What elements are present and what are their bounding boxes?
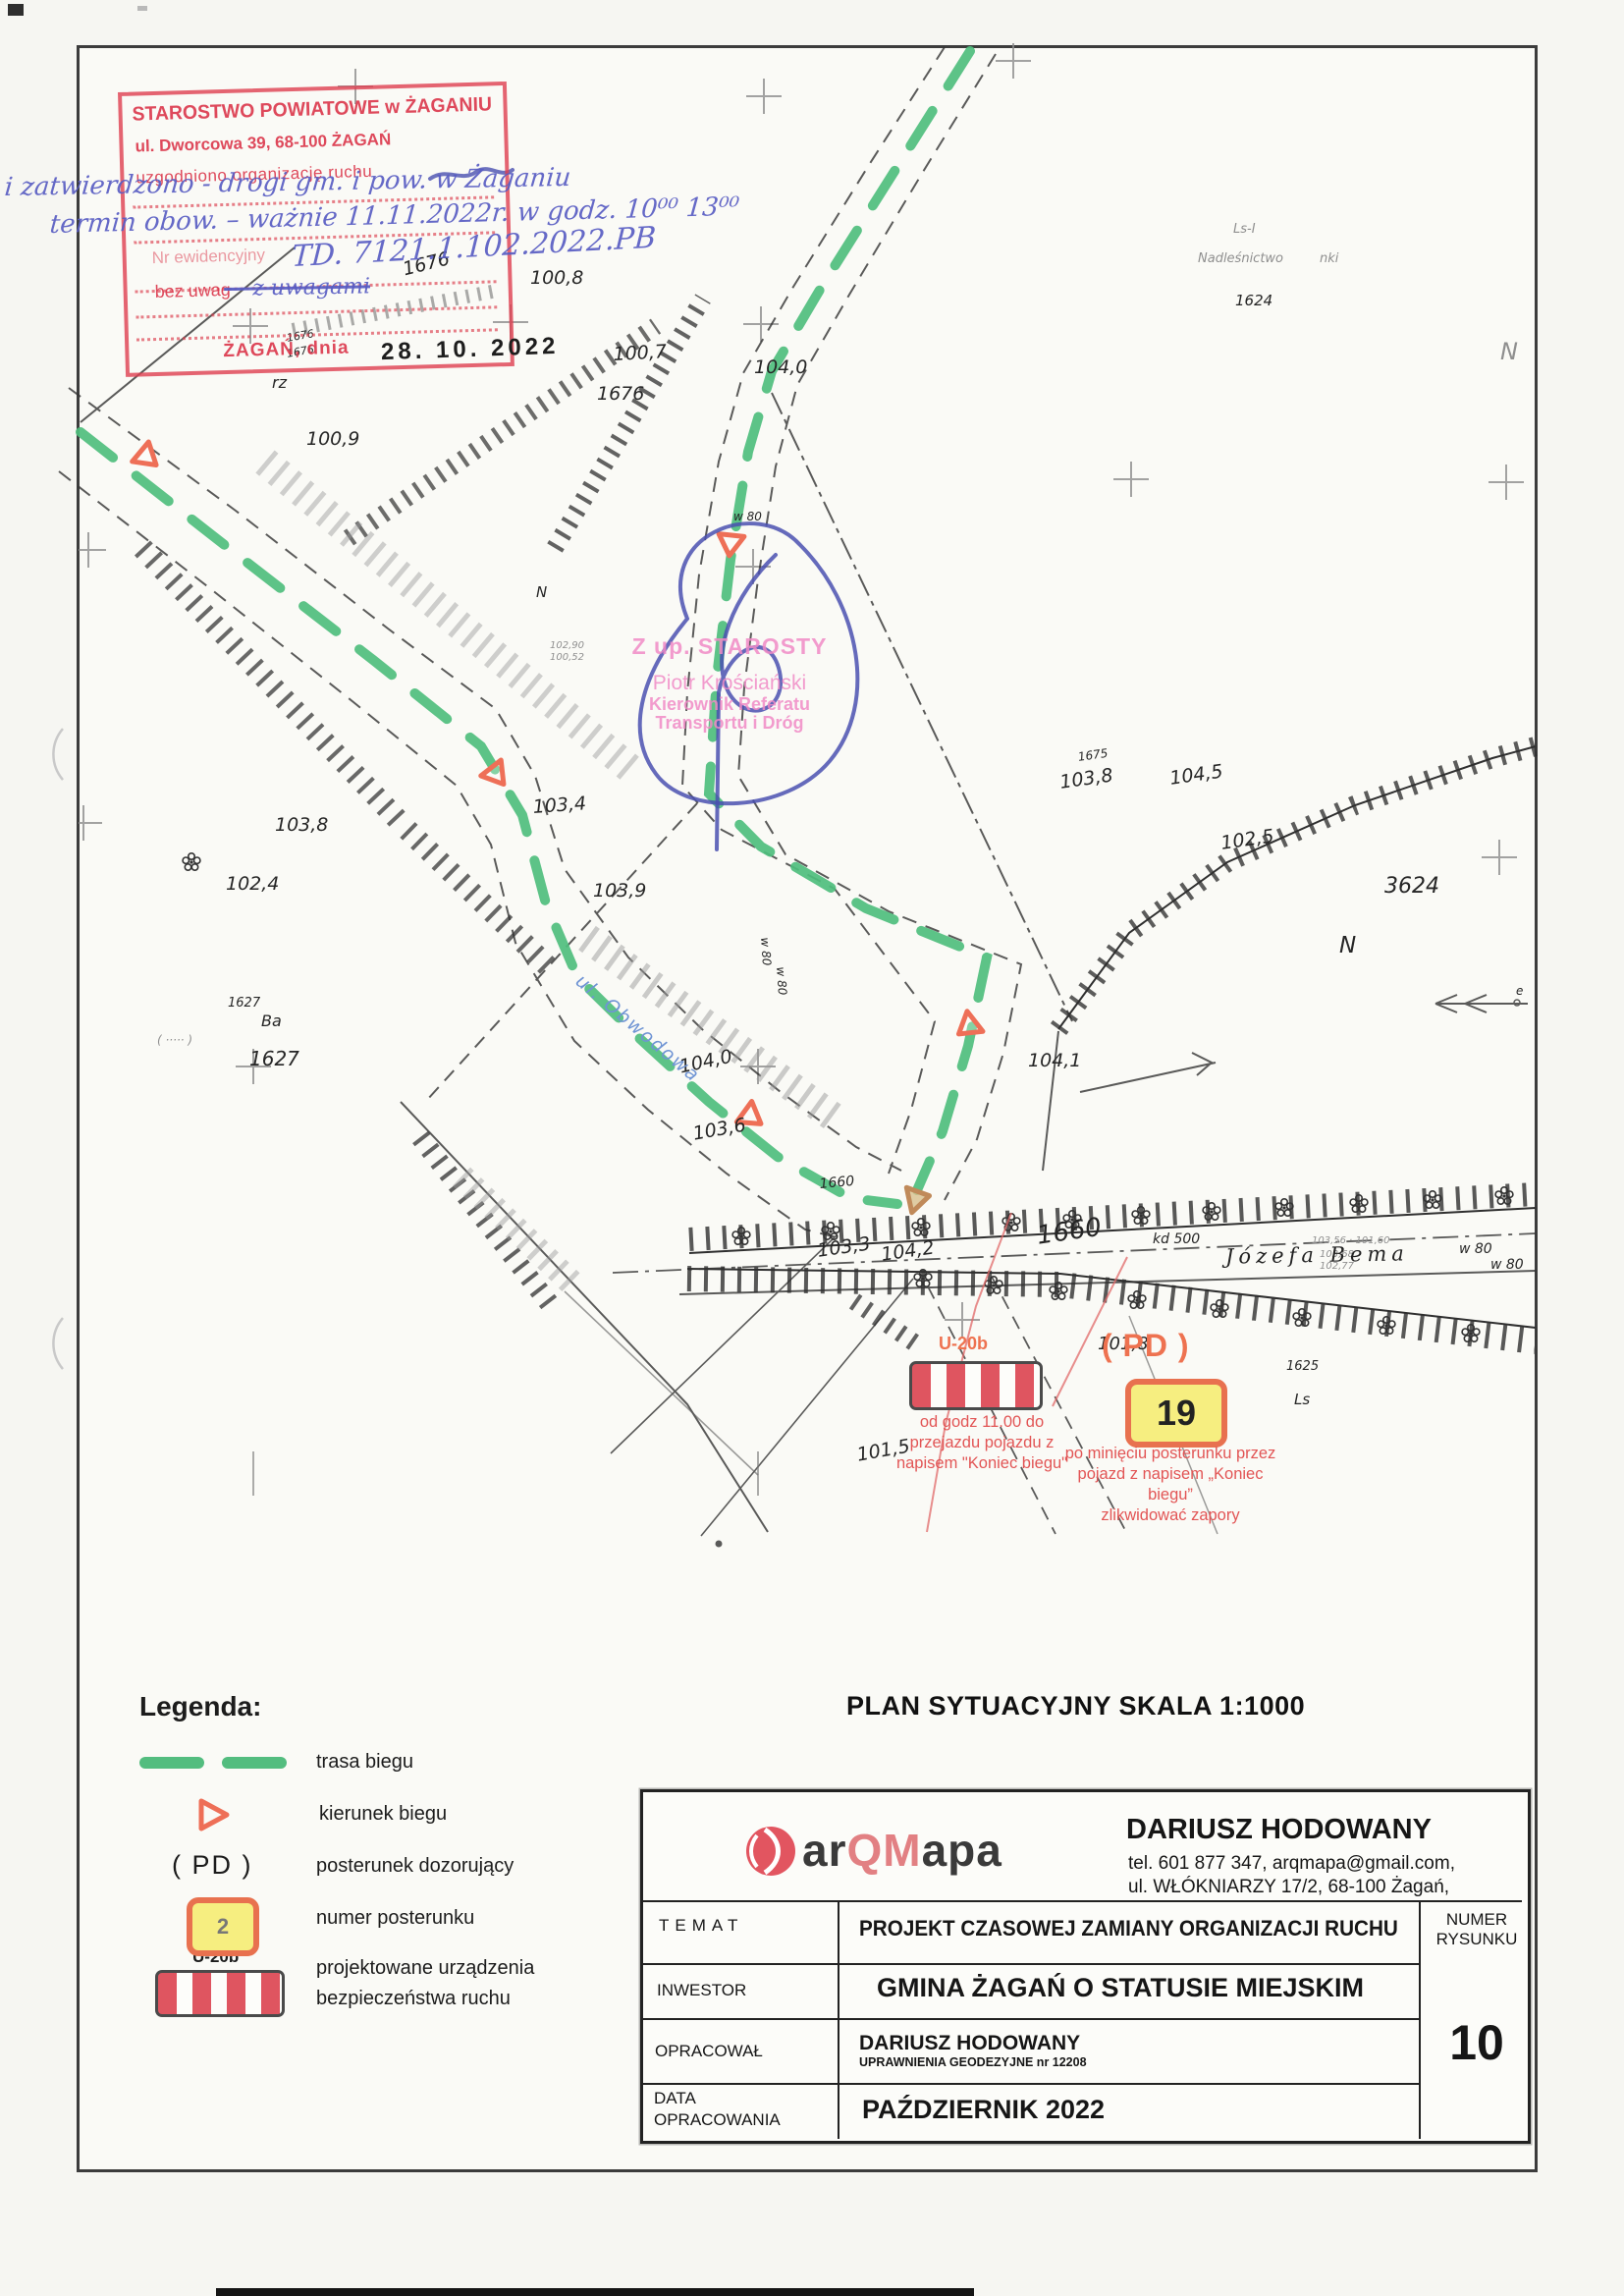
stamp-office-address: ul. Dworcowa 39, 68-100 ŻAGAŃ: [135, 130, 391, 156]
map-label: 1625: [1286, 1359, 1319, 1374]
map-label: 100,9: [306, 428, 359, 450]
map-label: w 80: [1459, 1241, 1492, 1257]
legend-number-label: numer posterunku: [316, 1907, 474, 1930]
map-label: 1676: [597, 383, 644, 405]
map-label: 1627: [249, 1047, 299, 1070]
approval-line3: Kierownik Referatu: [601, 695, 858, 714]
north-letter: N: [536, 583, 547, 601]
author-name: DARIUSZ HODOWANY: [1126, 1814, 1432, 1846]
map-label: 104,1: [1028, 1050, 1081, 1071]
map-label: 103,8: [275, 814, 328, 836]
inwestor-value: GMINA ŻAGAŃ O STATUSIE MIEJSKIM: [877, 1973, 1364, 2003]
title-block: arQMapa DARIUSZ HODOWANY tel. 601 877 34…: [640, 1789, 1531, 2144]
caption-right-line3: zlikwidować zapory: [1062, 1505, 1278, 1526]
numer-label-1: NUMER: [1432, 1910, 1522, 1930]
arqmapa-logo-text: arQMapa: [802, 1824, 1002, 1877]
numer-label-2: RYSUNKU: [1432, 1930, 1522, 1949]
data-value: PAŹDZIERNIK 2022: [862, 2095, 1105, 2125]
drawing-number: 10: [1432, 2014, 1522, 2071]
north-letter: N: [1500, 338, 1518, 365]
author-contact: tel. 601 877 347, arqmapa@gmail.com,: [1128, 1853, 1455, 1875]
map-label: 103,4: [532, 793, 587, 818]
map-label: w 80: [774, 966, 789, 996]
caption-right-line2: pojazd z napisem „Koniec biegu”: [1062, 1464, 1278, 1505]
map-label: 3624: [1384, 874, 1439, 899]
legend-route-label: trasa biegu: [316, 1751, 413, 1774]
pd-map-label: ( PD ): [1102, 1328, 1190, 1364]
stamp-nr-label: Nr ewidencyjny: [151, 246, 265, 268]
u20b-barrier-sample-icon: [155, 1970, 285, 2017]
approval-stamp: Z up. STAROSTY Piotr Krościański Kierown…: [601, 634, 858, 733]
approval-line2: Piotr Krościański: [601, 673, 858, 695]
legend-devices-line2: bezpieczeństwa ruchu: [316, 1988, 511, 2010]
map-label: w 80: [733, 510, 762, 523]
map-label: w 80: [1490, 1257, 1524, 1273]
map-label: 102,90: [550, 640, 584, 651]
caption-right-line1: po minięciu posterunku przez: [1062, 1444, 1278, 1464]
opracowal-sub: UPRAWNIENIA GEODEZYJNE nr 12208: [859, 2055, 1087, 2069]
legend-devices-line1: projektowane urządzenia: [316, 1957, 534, 1980]
map-label: 103,9: [593, 880, 646, 902]
temat-label: TEMAT: [659, 1916, 743, 1936]
scanned-plan-page: STAROSTWO POWIATOWE w ŻAGANIU ul. Dworco…: [0, 0, 1624, 2296]
caption-left-line3: napisem "Koniec biegu": [884, 1453, 1080, 1474]
legend-direction-label: kierunek biegu: [319, 1803, 447, 1826]
legend-title: Legenda:: [139, 1691, 261, 1722]
pd-symbol: ( PD ): [172, 1850, 253, 1881]
caption-left-line1: od godz 11.00 do: [884, 1412, 1080, 1433]
data-label-1: DATA: [654, 2089, 696, 2108]
map-label: Ba: [261, 1011, 282, 1030]
stamp-no-remarks: bez uwag: [154, 280, 231, 302]
approval-line1: Z up. STAROSTY: [601, 634, 858, 659]
temat-value: PROJEKT CZASOWEJ ZAMIANY ORGANIZACJI RUC…: [859, 1916, 1398, 1941]
map-label: w 80: [758, 937, 774, 966]
legend-pd-label: posterunek dozorujący: [316, 1855, 514, 1878]
map-label: e: [1516, 984, 1523, 998]
inwestor-label: INWESTOR: [657, 1981, 746, 2000]
caption-left-line2: przejazdu pojazdu z: [884, 1433, 1080, 1453]
direction-triangle-icons: [133, 442, 983, 1213]
map-label: 102,4: [226, 873, 279, 895]
map-label: Nadleśnictwo: [1198, 251, 1283, 266]
plan-title: PLAN SYTUACYJNY SKALA 1:1000: [846, 1691, 1305, 1722]
map-label: Ls: [1294, 1391, 1310, 1408]
direction-triangle-icon: [194, 1795, 234, 1834]
stamp-office-name: STAROSTWO POWIATOWE w ŻAGANIU: [132, 93, 492, 126]
route-dash-icon: [139, 1757, 204, 1769]
author-address: ul. WŁÓKNIARZY 17/2, 68-100 Żagań,: [1128, 1877, 1449, 1898]
map-label: 100,52: [550, 652, 584, 663]
arqmapa-logo-icon: [743, 1824, 798, 1879]
map-label: rz: [272, 373, 287, 392]
map-label: nki: [1320, 251, 1338, 266]
street-label-bema: Józefa Bema: [1225, 1241, 1409, 1268]
map-label: 100,7: [613, 341, 667, 365]
map-label: 100,8: [530, 267, 583, 289]
route-dash-icon: [222, 1757, 287, 1769]
opracowal-label: OPRACOWAŁ: [655, 2042, 763, 2061]
map-label-illegible: ( ····· ): [157, 1033, 192, 1047]
map-label: Ls-I: [1233, 222, 1256, 237]
post-number-sample-badge: 2: [187, 1897, 259, 1956]
post-number-badge: 19: [1125, 1379, 1227, 1448]
approval-line4: Transportu i Dróg: [601, 714, 858, 733]
u20b-map-label: U-20b: [939, 1334, 988, 1354]
data-label-2: OPRACOWANIA: [654, 2110, 781, 2130]
u20b-barrier-icon: [909, 1361, 1043, 1410]
north-letter: N: [1339, 933, 1356, 958]
stamp-with-remarks: — z uwagami: [224, 274, 370, 301]
opracowal-value: DARIUSZ HODOWANY: [859, 2032, 1080, 2055]
map-label: 1624: [1235, 292, 1272, 309]
logo-part-apa: apa: [922, 1825, 1002, 1876]
map-label: kd 500: [1153, 1231, 1200, 1247]
tree-icons: [183, 853, 1513, 1341]
map-label: 1660: [819, 1174, 855, 1192]
map-label: 1627: [228, 996, 260, 1011]
map-label: 104,0: [754, 356, 807, 378]
logo-part-ar: ar: [802, 1825, 846, 1876]
logo-part-qm: QM: [846, 1825, 921, 1876]
stamp-city-date: ŻAGAŃ, dnia: [223, 338, 350, 363]
